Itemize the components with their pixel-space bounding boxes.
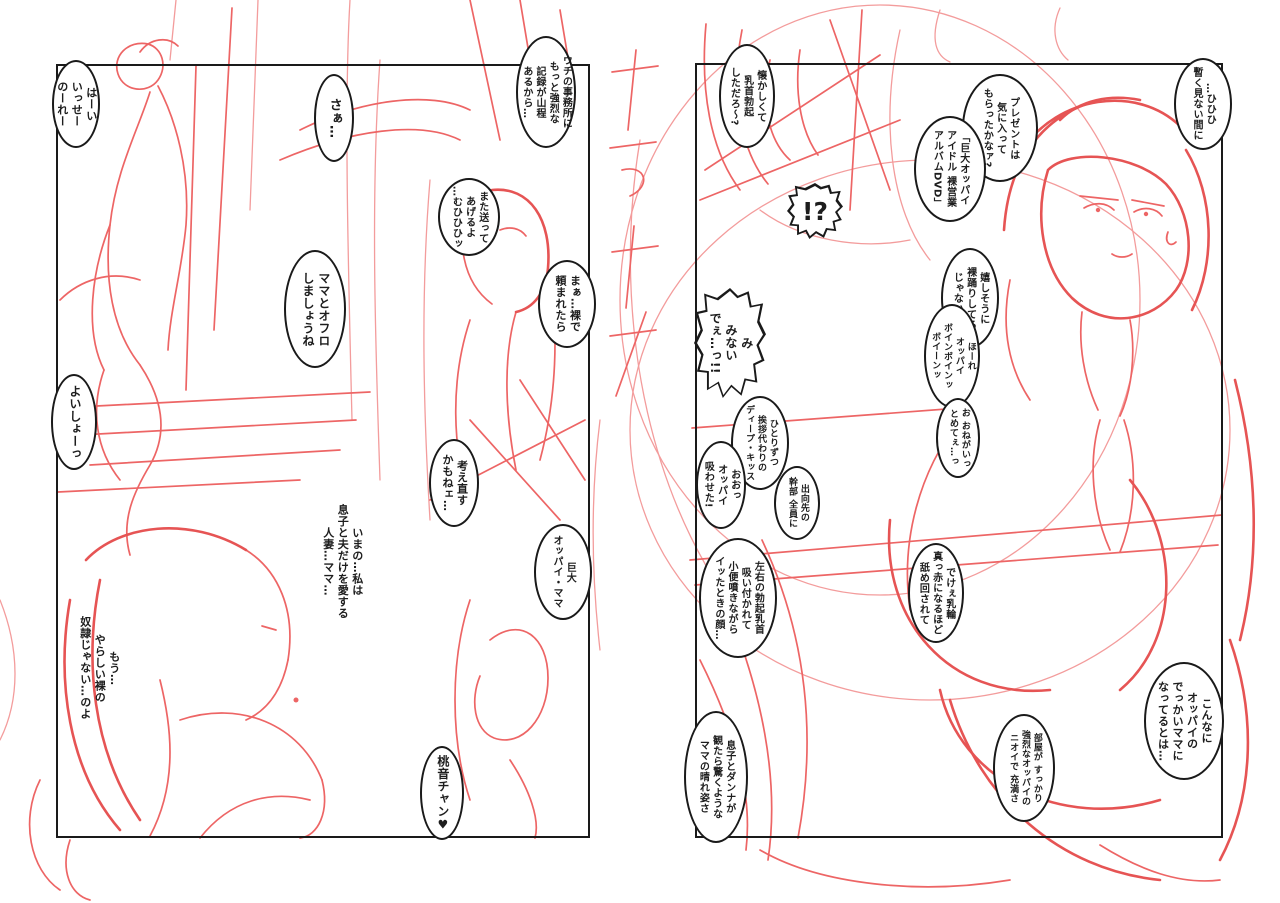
monologue-slave-bubble: もう… やらしい裸の 奴隷じゃない…のよ bbox=[73, 606, 125, 730]
bubble-text: 左右の勃起乳首 吸い付かれて 小便噴きながら イッたときの顔… bbox=[712, 556, 765, 640]
bubble-text: み みない でぇ…っ!! bbox=[706, 312, 753, 374]
bubble-text: さぁ… bbox=[325, 98, 342, 139]
bubble-text: 「巨大オッパイ アイドル 裸営業 アルバムDVD」 bbox=[930, 130, 970, 208]
send-again-bubble: また送って あげるよ …むひひひッ bbox=[438, 178, 500, 256]
sayuu-chikubi-bubble: 左右の勃起乳首 吸い付かれて 小便噴きながら イッたときの顔… bbox=[699, 538, 777, 658]
bubble-text: プレゼントは 気に入って もらったかなァ? bbox=[980, 88, 1020, 168]
bubble-text: おおっ オッパイ 吸わせた! bbox=[701, 461, 741, 508]
bubble-text: よいしょーっ bbox=[66, 385, 82, 460]
asked-naked-bubble: まぁ…裸で 頼まれたら bbox=[538, 260, 596, 348]
bubble-text: もう… やらしい裸の 奴隷じゃない…のよ bbox=[77, 616, 121, 720]
bubble-text: 考え直す かもねェ… bbox=[439, 454, 468, 512]
bubble-text: …ひひひ 暫く見ない間に bbox=[1190, 67, 1216, 141]
office-records-bubble: ウチの事務所に もっと強烈な 記録が山程 あるから… bbox=[516, 36, 576, 148]
oppai-suwaseta-bubble: おおっ オッパイ 吸わせた! bbox=[696, 441, 746, 529]
bubble-text: でけぇ乳輪 真っ赤になるほど 舐め回されて bbox=[916, 551, 956, 635]
bubble-text: はーい いっせー のーれー bbox=[54, 81, 98, 127]
yoisho-bubble: よいしょーっ bbox=[51, 374, 97, 470]
heya-nioi-bubble: 部屋が すっかり 強烈なオッパイの ニオイで 充満さ bbox=[993, 714, 1055, 822]
bubble-text: 懐かしくて 乳首勃起 しただろ〜? bbox=[727, 67, 767, 126]
dekee-nyurin-bubble: でけぇ乳輪 真っ赤になるほど 舐め回されて bbox=[908, 543, 964, 643]
ofuro-bubble: ママとオフロ しましょうね bbox=[284, 250, 346, 368]
bubble-text: 桃音チャン♥ bbox=[434, 755, 450, 832]
reconsider-bubble: 考え直す かもねェ… bbox=[429, 439, 479, 527]
bubble-text: 息子とダンナが 観たら驚くような ママの晴れ姿さ bbox=[696, 735, 736, 819]
shukko-kanbu-bubble: 出向先の 幹部 全員に bbox=[774, 466, 820, 540]
bubble-text: ほーれ オッパイ ボインボインッ ボイーンッ bbox=[928, 323, 976, 390]
bubble-text: まぁ…裸で 頼まれたら bbox=[552, 275, 581, 333]
hihihi-bubble: …ひひひ 暫く見ない間に bbox=[1174, 58, 1232, 150]
bubble-text: ウチの事務所に もっと強烈な 記録が山程 あるから… bbox=[520, 55, 573, 129]
manga-spread: はーい いっせー のーれー さぁ… ウチの事務所に もっと強烈な 記録が山程 あ… bbox=[0, 0, 1280, 903]
konna-ni-mama-bubble: こんなに オッパイの でっかいママに なってるとは… bbox=[1144, 662, 1224, 780]
monologue-wife-bubble: いまの…私は 息子と夫だけを愛する 人妻…ママ… bbox=[316, 490, 368, 632]
sketch-drawing-layer bbox=[0, 0, 1280, 903]
dvd-title-bubble: 「巨大オッパイ アイドル 裸営業 アルバムDVD」 bbox=[914, 116, 986, 222]
bubble-text: ママとオフロ しましょうね bbox=[299, 272, 331, 347]
musuko-danna-bubble: 息子とダンナが 観たら驚くような ママの晴れ姿さ bbox=[684, 711, 748, 843]
onegai-tomete-bubble: お おねがいっ とめてぇ…っ bbox=[936, 398, 980, 478]
bubble-text: 部屋が すっかり 強烈なオッパイの ニオイで 充満さ bbox=[1006, 730, 1042, 806]
bubble-text: こんなに オッパイの でっかいママに なってるとは… bbox=[1155, 681, 1213, 762]
bubble-text: また送って あげるよ …むひひひッ bbox=[449, 186, 489, 249]
bubble-text: いまの…私は 息子と夫だけを愛する 人妻…ママ… bbox=[320, 504, 364, 619]
bubble-text: ひとりずつ 挨拶代わりの ディープ・キッス bbox=[742, 405, 778, 481]
saa-bubble: さぁ… bbox=[314, 74, 354, 162]
momone-chan-bubble: 桃音チャン♥ bbox=[420, 746, 464, 840]
bubble-text: 出向先の 幹部 全員に bbox=[785, 477, 809, 528]
natsukashii-bubble: 懐かしくて 乳首勃起 しただろ〜? bbox=[719, 44, 775, 148]
bubble-text: !? bbox=[802, 195, 828, 228]
bubble-text: 巨大 オッパイ・ママ bbox=[550, 535, 576, 609]
kyodai-oppai-mama-bubble: 巨大 オッパイ・ママ bbox=[534, 524, 592, 620]
greeting-bubble: はーい いっせー のーれー bbox=[52, 60, 100, 148]
boin-boin-bubble: ほーれ オッパイ ボインボインッ ボイーンッ bbox=[924, 304, 980, 408]
bubble-text: お おねがいっ とめてぇ…っ bbox=[946, 408, 970, 469]
